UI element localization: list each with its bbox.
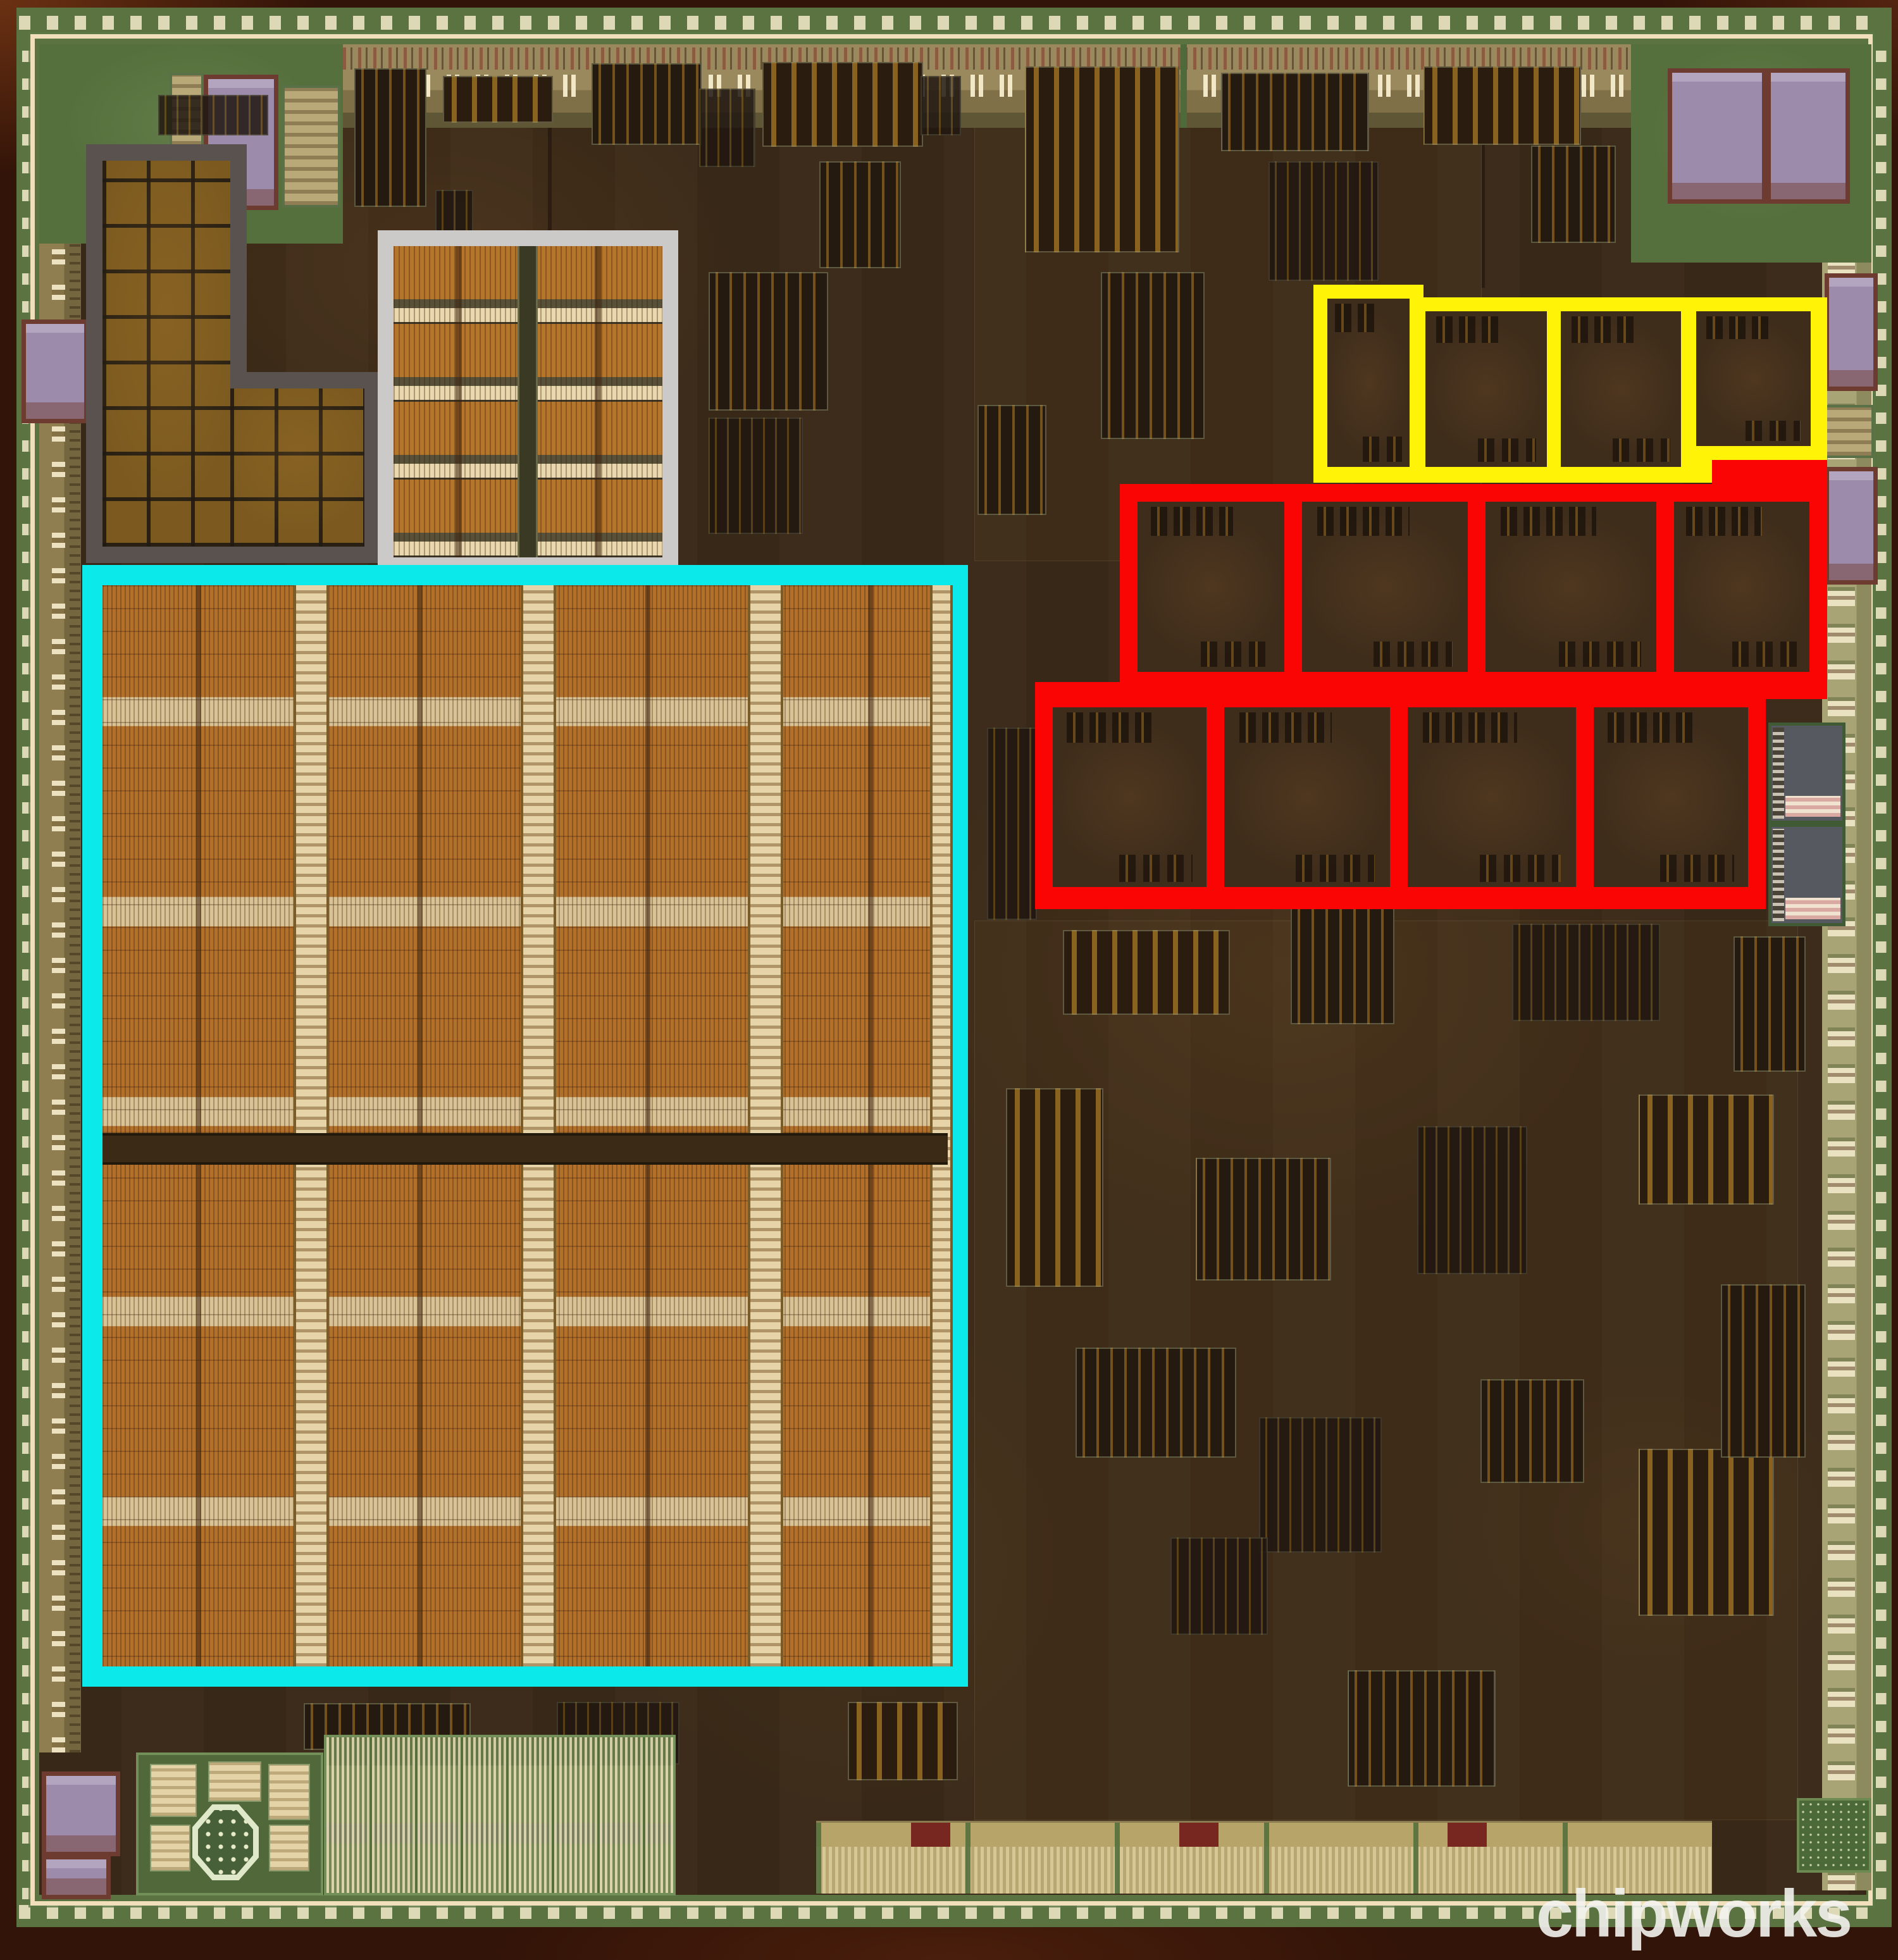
logic-cluster <box>1417 1126 1527 1274</box>
array-divider <box>645 585 650 1666</box>
array-divider <box>595 246 601 557</box>
array-divider <box>418 585 423 1666</box>
logic-cluster <box>592 63 702 145</box>
annotation-region-light-gray <box>378 230 678 573</box>
logic-cluster <box>1025 66 1179 252</box>
logic-cluster <box>158 95 268 135</box>
red-cell-bottom-4 <box>1594 707 1748 887</box>
logic-cluster <box>987 728 1037 920</box>
die-photo: chipworks <box>0 0 1898 1960</box>
logic-cluster <box>1076 1348 1236 1458</box>
red-cell-top-4 <box>1674 502 1809 672</box>
red-cell-bottom-1 <box>1053 707 1206 887</box>
yellow-cell-4 <box>1696 311 1811 446</box>
analog-block-pll <box>136 1752 323 1895</box>
logic-cluster <box>709 418 803 534</box>
yellow-cell-3 <box>1561 311 1681 467</box>
analog-circuit-detail <box>150 1764 197 1817</box>
sram-macro-block <box>394 246 662 557</box>
pad-block <box>282 85 340 208</box>
memory-block-right-lower <box>1768 824 1845 926</box>
analog-block-phy <box>324 1735 676 1895</box>
logic-cluster <box>1170 1537 1268 1635</box>
logic-cluster <box>1423 66 1581 145</box>
inductor-octagon <box>192 1804 259 1880</box>
logic-cluster <box>699 89 755 167</box>
logic-cluster <box>1480 1379 1584 1483</box>
red-cell-top-3 <box>1486 502 1656 672</box>
analog-circuit-detail <box>268 1764 310 1820</box>
pad-block-purple <box>1825 467 1878 585</box>
logic-cluster <box>1734 936 1806 1072</box>
logic-cluster <box>1063 930 1230 1015</box>
logic-cluster <box>1512 924 1660 1021</box>
macro-center-spine <box>518 246 538 557</box>
pad-block <box>1825 405 1874 458</box>
array-spine <box>930 585 953 1666</box>
red-cell-top-1 <box>1138 502 1284 672</box>
red-cell-bottom-2 <box>1224 707 1390 887</box>
io-cell-band-right <box>1822 128 1871 1890</box>
logic-cluster <box>1291 905 1394 1024</box>
annotation-region-yellow <box>1313 285 1832 483</box>
logic-cluster <box>1006 1088 1103 1287</box>
pad-block-purple <box>42 1771 120 1856</box>
sram-tile-array <box>102 161 230 547</box>
yellow-cell-1 <box>1327 299 1410 467</box>
logic-cluster <box>1721 1284 1806 1458</box>
logic-cluster <box>709 272 828 411</box>
array-row-gap <box>102 1133 948 1165</box>
annotation-region-red <box>1035 460 1832 909</box>
dram-array <box>102 585 948 1666</box>
logic-cluster <box>1259 1417 1382 1553</box>
logic-cluster <box>1101 272 1205 439</box>
pad-block-purple <box>1668 68 1766 204</box>
logic-cluster <box>1639 1449 1774 1616</box>
array-spine <box>521 585 556 1666</box>
analog-circuit-detail <box>208 1761 261 1802</box>
yellow-cell-2 <box>1425 311 1547 467</box>
io-band-divider <box>1181 44 1187 128</box>
array-divider <box>196 585 201 1666</box>
pad-block-purple <box>22 319 89 423</box>
sram-tile-array <box>230 388 364 547</box>
pad-block-purple <box>1766 68 1850 204</box>
array-divider <box>456 246 462 557</box>
logic-cluster <box>848 1702 958 1780</box>
logic-cluster <box>443 76 553 123</box>
logic-cluster <box>762 62 923 147</box>
logic-cluster <box>1639 1095 1774 1205</box>
red-cell-top-2 <box>1302 502 1468 672</box>
logic-cluster <box>354 68 426 207</box>
logic-cluster <box>921 76 961 135</box>
logic-cluster <box>1348 1670 1496 1787</box>
annotation-region-cyan <box>82 565 968 1687</box>
logic-cluster <box>977 405 1046 515</box>
memory-block-right-upper <box>1768 723 1845 824</box>
logic-cluster <box>819 161 901 268</box>
logic-cluster <box>1221 73 1369 151</box>
corner-mesh-block <box>1797 1798 1871 1873</box>
pad-ring-top <box>19 10 1879 35</box>
logic-cluster <box>1268 161 1379 281</box>
red-cell-bottom-3 <box>1408 707 1576 887</box>
array-spine <box>748 585 783 1666</box>
pad-block-purple <box>1825 273 1878 391</box>
inductor-octagon-core <box>198 1810 253 1875</box>
array-spine <box>294 585 329 1666</box>
watermark: chipworks <box>1536 1880 1851 1947</box>
logic-cluster <box>1531 146 1616 243</box>
analog-circuit-detail <box>269 1825 309 1871</box>
pad-block-purple <box>42 1855 111 1899</box>
array-divider <box>868 585 873 1666</box>
analog-circuit-detail <box>150 1825 190 1871</box>
logic-cluster <box>1196 1158 1331 1281</box>
